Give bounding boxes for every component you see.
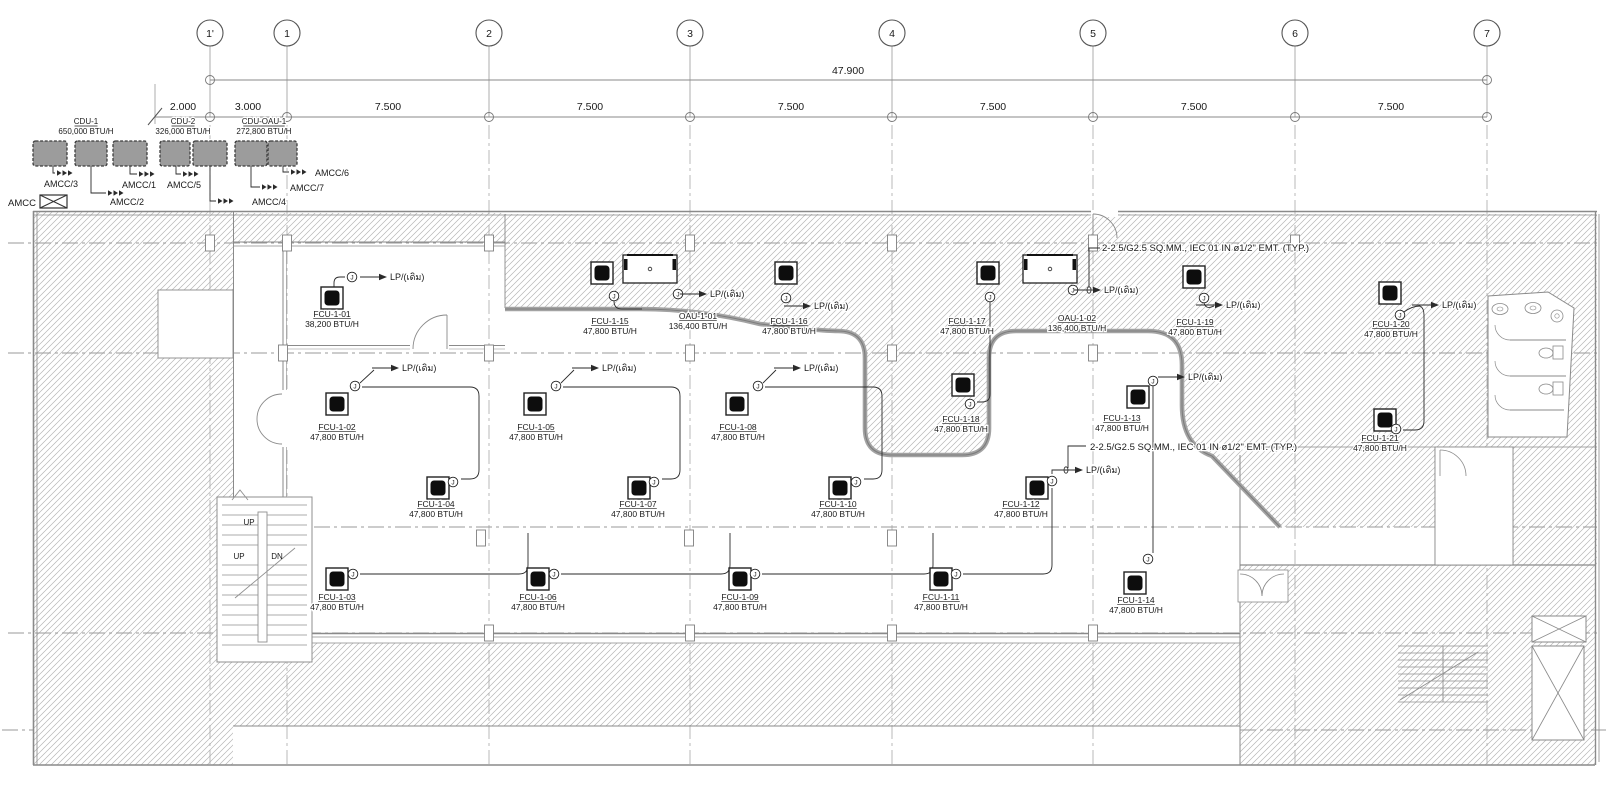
cdu-box-3 xyxy=(113,141,147,166)
unit-btu-label: 47,800 BTU/H xyxy=(1095,423,1149,433)
lp-arrow-head-icon xyxy=(793,365,801,371)
unit-id-label: FCU-1-15 xyxy=(591,316,629,326)
fcu-symbol-fill xyxy=(956,378,971,393)
lp-arrow-head-icon xyxy=(379,274,387,280)
fcu-symbol-fill xyxy=(595,266,610,281)
feeder-arrow-icon xyxy=(139,171,144,177)
fcu-symbol-fill xyxy=(833,481,848,496)
junction-box-glyph: J xyxy=(1071,287,1074,294)
grid-bubble-label: 7 xyxy=(1484,28,1490,40)
unit-FCU-1-01: FCU-1-0138,200 BTU/H xyxy=(305,287,359,329)
fcu-symbol-fill xyxy=(431,481,446,496)
junction-box-glyph: J xyxy=(968,401,971,408)
lp-panel-label: LP/(เดิม) xyxy=(1086,465,1120,475)
unit-btu-label: 47,800 BTU/H xyxy=(934,424,988,434)
junction-box-glyph: J xyxy=(451,479,454,486)
junction-box-glyph: J xyxy=(612,293,615,300)
dimension-text: 7.500 xyxy=(1378,101,1404,113)
cdu-btu-label: 650,000 BTU/H xyxy=(58,127,113,136)
feeder-label: AMCC/7 xyxy=(290,183,324,193)
feeder-line xyxy=(91,166,106,193)
fcu-symbol-fill xyxy=(531,572,546,587)
grid-bubble-label: 5 xyxy=(1090,28,1096,40)
grid-bubble-label: 1' xyxy=(206,28,214,40)
feeder-arrow-icon xyxy=(229,198,234,204)
unit-id-label: FCU-1-17 xyxy=(948,316,986,326)
junction-box-glyph: J xyxy=(351,571,354,578)
unit-FCU-1-14: FCU-1-1447,800 BTU/H xyxy=(1109,572,1163,615)
feeder-arrow-icon xyxy=(57,170,62,176)
feeder-arrow-icon xyxy=(150,171,155,177)
junction-box-glyph: J xyxy=(353,383,356,390)
feeder-arrow-icon xyxy=(262,184,267,190)
floor-plan-page: 1'123456747.9002.0003.0007.5007.5007.500… xyxy=(0,0,1611,795)
unit-id-label: FCU-1-09 xyxy=(721,592,759,602)
grid-bubble-label: 1 xyxy=(284,28,290,40)
feeder-arrow-icon xyxy=(68,170,73,176)
hatch-corridor-wedge xyxy=(1212,447,1435,527)
oau-tab xyxy=(1024,259,1028,270)
dimension-text: 7.500 xyxy=(778,101,804,113)
unit-btu-label: 47,800 BTU/H xyxy=(994,509,1048,519)
hatched-regions xyxy=(33,211,1597,765)
feeder-arrow-icon xyxy=(273,184,278,190)
unit-btu-label: 47,800 BTU/H xyxy=(310,602,364,612)
unit-id-label: FCU-1-19 xyxy=(1176,317,1214,327)
unit-id-label: FCU-1-03 xyxy=(318,592,356,602)
fcu-symbol-fill xyxy=(1128,576,1143,591)
oau-symbol-icon xyxy=(1023,255,1077,283)
junction-box-glyph: J xyxy=(1394,426,1397,433)
dimension-text: 3.000 xyxy=(235,101,261,113)
junction-box-glyph: J xyxy=(1398,312,1401,319)
fcu-symbol-fill xyxy=(934,572,949,587)
unit-id-label: FCU-1-05 xyxy=(517,422,555,432)
feeder-arrow-icon xyxy=(302,169,307,175)
junction-box-glyph: J xyxy=(1146,556,1149,563)
grid-bubble-label: 4 xyxy=(889,28,895,40)
elevator-shafts xyxy=(1532,616,1586,740)
feeder-line xyxy=(53,166,55,173)
fcu-symbol-fill xyxy=(632,481,647,496)
feeder-line xyxy=(251,166,260,187)
oau-tab xyxy=(1073,259,1077,270)
lp-arrow-head-icon xyxy=(391,365,399,371)
feeder-arrow-icon xyxy=(119,190,124,196)
unit-id-label: OAU-1-02 xyxy=(1058,313,1097,323)
unit-btu-label: 47,800 BTU/H xyxy=(1364,329,1418,339)
lp-arrow-head-icon xyxy=(1075,467,1083,473)
junction-box-glyph: J xyxy=(676,291,679,298)
unit-id-label: FCU-1-02 xyxy=(318,422,356,432)
unit-btu-label: 47,800 BTU/H xyxy=(509,432,563,442)
cdu-box-7 xyxy=(268,141,297,166)
note-leader xyxy=(1068,446,1086,468)
lp-panel-label: LP/(เดิม) xyxy=(402,363,436,373)
cdu-bank-layer: CDU-1650,000 BTU/HCDU-2326,000 BTU/HCDU-… xyxy=(8,117,349,209)
stair-direction-label: UP xyxy=(243,518,254,527)
unit-id-label: FCU-1-07 xyxy=(619,499,657,509)
dimension-text: 7.500 xyxy=(1181,101,1207,113)
unit-btu-label: 47,800 BTU/H xyxy=(713,602,767,612)
grid-bubble-label: 3 xyxy=(687,28,693,40)
junction-box-glyph: J xyxy=(756,383,759,390)
amcc-legend-label: AMCC xyxy=(8,198,36,209)
unit-id-label: FCU-1-14 xyxy=(1117,595,1155,605)
cdu-box-2 xyxy=(75,141,107,166)
unit-id-label: FCU-1-06 xyxy=(519,592,557,602)
fcu-symbol-fill xyxy=(1030,481,1045,496)
lp-panel-label: LP/(เดิม) xyxy=(1226,300,1260,310)
unit-btu-label: 47,800 BTU/H xyxy=(310,432,364,442)
feeder-arrow-icon xyxy=(108,190,113,196)
unit-id-label: OAU-1-01 xyxy=(679,311,718,321)
unit-btu-label: 47,800 BTU/H xyxy=(711,432,765,442)
junction-box-glyph: J xyxy=(1050,478,1053,485)
dimension-text: 2.000 xyxy=(170,101,196,113)
lp-panel-label: LP/(เดิม) xyxy=(710,289,744,299)
fcu-symbol-fill xyxy=(733,572,748,587)
junction-box-glyph: J xyxy=(954,571,957,578)
circuit-note-text: 2-2.5/G2.5 SQ.MM., IEC 01 IN ø1/2" EMT. … xyxy=(1090,442,1297,453)
fcu-symbol-fill xyxy=(981,266,996,281)
unit-btu-label: 47,800 BTU/H xyxy=(611,509,665,519)
feeder-line xyxy=(283,166,289,172)
cdu-box-4 xyxy=(160,141,190,166)
grid-bubble-label: 6 xyxy=(1292,28,1298,40)
lp-panel-label: LP/(เดิม) xyxy=(390,272,424,282)
junction-box-glyph: J xyxy=(1202,295,1205,302)
unit-btu-label: 47,800 BTU/H xyxy=(1353,443,1407,453)
unit-btu-label: 47,800 BTU/H xyxy=(762,326,816,336)
junction-box-glyph: J xyxy=(1151,378,1154,385)
floor-plan-drawing: 1'123456747.9002.0003.0007.5007.5007.500… xyxy=(0,0,1611,795)
unit-btu-label: 47,800 BTU/H xyxy=(940,326,994,336)
fcu-symbol-fill xyxy=(1131,390,1146,405)
feeder-label: AMCC/2 xyxy=(110,197,144,207)
feeder-line xyxy=(176,166,181,174)
fcu-symbol-fill xyxy=(330,397,345,412)
cdu-label: CDU-OAU-1 xyxy=(242,117,287,126)
unit-FCU-1-02: FCU-1-0247,800 BTU/H xyxy=(310,393,364,442)
cdu-box-1 xyxy=(33,141,67,166)
junction-box-glyph: J xyxy=(350,274,353,281)
hatch-top-strip xyxy=(233,213,505,243)
unit-btu-label: 47,800 BTU/H xyxy=(409,509,463,519)
feeder-label: AMCC/6 xyxy=(315,168,349,178)
unit-FCU-1-05: FCU-1-0547,800 BTU/H xyxy=(509,393,563,442)
feeder-arrow-icon xyxy=(114,190,119,196)
oau-tab xyxy=(673,259,677,270)
overall-dimension-text: 47.900 xyxy=(832,65,864,77)
unit-id-label: FCU-1-20 xyxy=(1372,319,1410,329)
feeder-label: AMCC/4 xyxy=(252,197,286,207)
unit-id-label: FCU-1-16 xyxy=(770,316,808,326)
unit-FCU-1-08: FCU-1-0847,800 BTU/H xyxy=(711,393,765,442)
stair-direction-label: DN xyxy=(271,552,283,561)
fcu-symbol-fill xyxy=(779,266,794,281)
bathroom xyxy=(1488,292,1574,437)
unit-btu-label: 47,800 BTU/H xyxy=(914,602,968,612)
lp-panel-label: LP/(เดิม) xyxy=(814,301,848,311)
feeder-arrow-icon xyxy=(268,184,273,190)
unit-btu-label: 38,200 BTU/H xyxy=(305,319,359,329)
lp-panel-label: LP/(เดิม) xyxy=(1442,300,1476,310)
unit-id-label: FCU-1-11 xyxy=(923,592,960,602)
junction-box-glyph: J xyxy=(988,294,991,301)
feeder-arrow-icon xyxy=(194,171,199,177)
dimension-text: 7.500 xyxy=(375,101,401,113)
lp-arrow-head-icon xyxy=(591,365,599,371)
lp-panel-label: LP/(เดิม) xyxy=(602,363,636,373)
unit-btu-label: 136,400 BTU/H xyxy=(669,321,728,331)
feeder-arrow-icon xyxy=(297,169,302,175)
dimension-text: 7.500 xyxy=(980,101,1006,113)
unit-id-label: FCU-1-13 xyxy=(1103,413,1141,423)
unit-id-label: FCU-1-18 xyxy=(942,414,980,424)
unit-id-label: FCU-1-21 xyxy=(1361,433,1399,443)
feeder-arrow-icon xyxy=(145,171,150,177)
cdu-label: CDU-2 xyxy=(171,117,196,126)
unit-id-label: FCU-1-10 xyxy=(819,499,857,509)
unit-FCU-1-12: FCU-1-1247,800 BTU/H xyxy=(994,477,1048,519)
cdu-label: CDU-1 xyxy=(74,117,99,126)
junction-box-glyph: J xyxy=(854,479,857,486)
unit-btu-label: 47,800 BTU/H xyxy=(1168,327,1222,337)
rooms-lower-right xyxy=(1435,447,1513,565)
hatch-right-strip xyxy=(1513,447,1597,565)
fcu-symbol-fill xyxy=(1383,286,1398,301)
grid-bubble-label: 2 xyxy=(486,28,492,40)
oau-symbol-icon xyxy=(623,255,677,283)
unit-btu-label: 47,800 BTU/H xyxy=(1109,605,1163,615)
unit-id-label: FCU-1-01 xyxy=(313,309,351,319)
feeder-label: AMCC/1 xyxy=(122,180,156,190)
junction-box-glyph: J xyxy=(652,479,655,486)
unit-btu-label: 47,800 BTU/H xyxy=(811,509,865,519)
junction-box-glyph: J xyxy=(753,571,756,578)
unit-id-label: FCU-1-04 xyxy=(417,499,455,509)
feeder-arrow-icon xyxy=(63,170,68,176)
junction-box-glyph: J xyxy=(552,571,555,578)
feeder-line xyxy=(210,166,216,201)
hatch-ceiling-zone xyxy=(505,214,1597,456)
fcu-symbol-fill xyxy=(1378,413,1393,428)
feeder-arrow-icon xyxy=(189,171,194,177)
fcu-symbol-fill xyxy=(325,291,340,306)
oau-tab xyxy=(624,259,628,270)
cdu-btu-label: 326,000 BTU/H xyxy=(155,127,210,136)
feeder-arrow-icon xyxy=(291,169,296,175)
feeder-line xyxy=(130,166,137,174)
lp-panel-label: LP/(เดิม) xyxy=(804,363,838,373)
dimension-layer: 1'123456747.9002.0003.0007.5007.5007.500… xyxy=(148,20,1500,125)
junction-box-glyph: J xyxy=(784,295,787,302)
hatch-bottom-strip xyxy=(233,643,1240,726)
unit-btu-label: 136,400 BTU/H xyxy=(1048,323,1107,333)
feeder-label: AMCC/5 xyxy=(167,180,201,190)
cdu-box-5 xyxy=(193,141,227,166)
lp-panel-label: LP/(เดิม) xyxy=(1188,372,1222,382)
unit-FCU-1-13: FCU-1-1347,800 BTU/H xyxy=(1095,386,1149,433)
unit-id-label: FCU-1-12 xyxy=(1002,499,1040,509)
fcu-symbol-fill xyxy=(528,397,543,412)
cdu-box-6 xyxy=(235,141,267,166)
lp-panel-label: LP/(เดิม) xyxy=(1104,285,1138,295)
fcu-symbol-fill xyxy=(330,572,345,587)
cdu-btu-label: 272,800 BTU/H xyxy=(236,127,291,136)
unit-btu-label: 47,800 BTU/H xyxy=(583,326,637,336)
feeder-label: AMCC/3 xyxy=(44,179,78,189)
feeder-arrow-icon xyxy=(224,198,229,204)
feeder-arrow-icon xyxy=(183,171,188,177)
feeder-arrow-icon xyxy=(218,198,223,204)
fcu-symbol-fill xyxy=(730,397,745,412)
stair-direction-label: UP xyxy=(233,552,244,561)
dimension-text: 7.500 xyxy=(577,101,603,113)
junction-box-glyph: J xyxy=(554,383,557,390)
circuit-note-text: 2-2.5/G2.5 SQ.MM., IEC 01 IN ø1/2" EMT. … xyxy=(1102,243,1309,254)
unit-id-label: FCU-1-08 xyxy=(719,422,757,432)
fcu-symbol-fill xyxy=(1187,270,1202,285)
unit-btu-label: 47,800 BTU/H xyxy=(511,602,565,612)
stair-left xyxy=(217,490,312,662)
